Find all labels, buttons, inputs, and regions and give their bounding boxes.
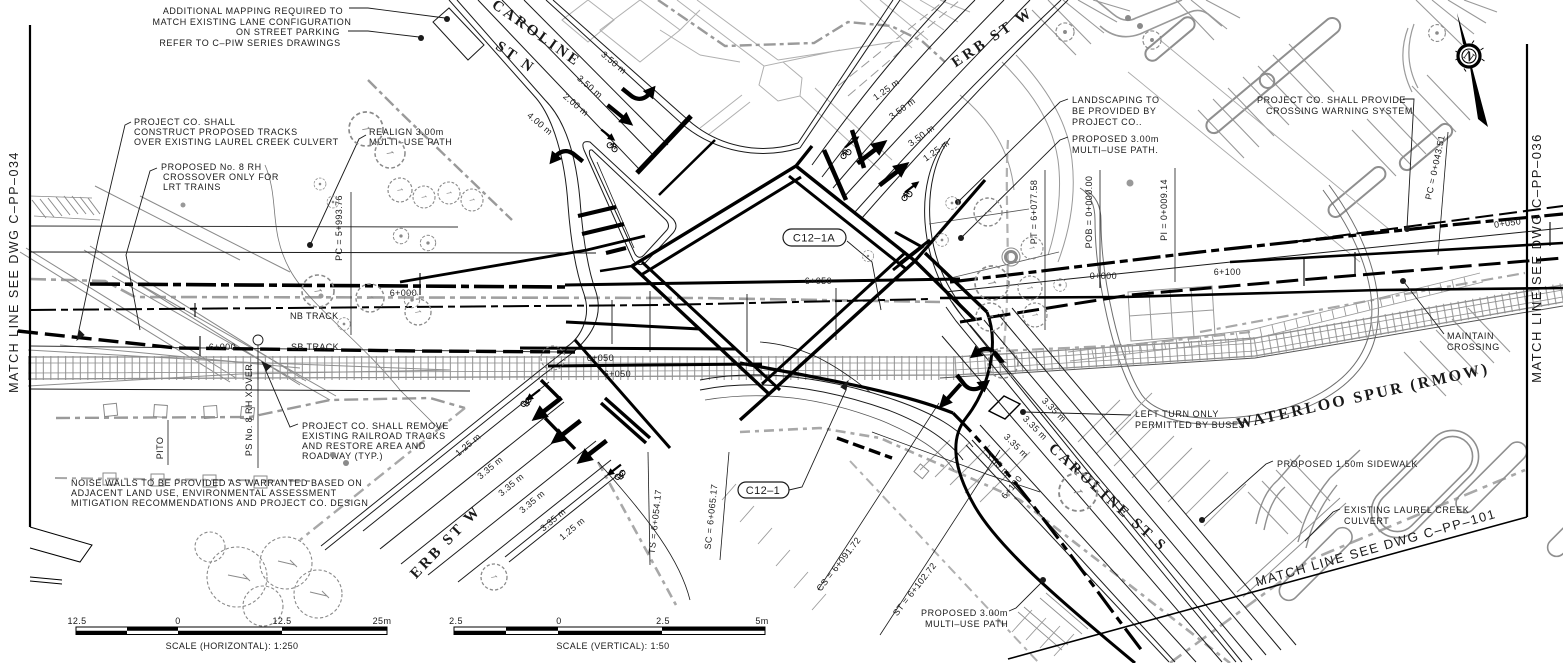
svg-text:6+000: 6+000 bbox=[390, 288, 417, 298]
svg-text:NOISE WALLS TO BE PROVIDED: NOISE WALLS TO BE PROVIDED AS WARRANTED … bbox=[71, 478, 362, 488]
svg-text:OVER EXISTING LAUREL CREEK: OVER EXISTING LAUREL CREEK CULVERT bbox=[134, 137, 339, 147]
svg-text:SCALE (HORIZONTAL): 1:250: SCALE (HORIZONTAL): 1:250 bbox=[166, 641, 299, 651]
svg-text:LANDSCAPING TO: LANDSCAPING TO bbox=[1072, 95, 1160, 105]
svg-text:NB TRACK: NB TRACK bbox=[290, 311, 339, 321]
svg-text:CULVERT: CULVERT bbox=[1344, 516, 1389, 526]
svg-text:25m: 25m bbox=[373, 616, 392, 626]
svg-text:PROPOSED 3.00m: PROPOSED 3.00m bbox=[921, 608, 1008, 618]
svg-text:CONSTRUCT PROPOSED TRACKS: CONSTRUCT PROPOSED TRACKS bbox=[134, 127, 298, 137]
svg-text:C12–1A: C12–1A bbox=[793, 233, 835, 245]
svg-text:MITIGATION RECOMMENDATIONS A: MITIGATION RECOMMENDATIONS AND PROJECT C… bbox=[71, 498, 368, 508]
svg-text:PROJECT CO. SHALL PROVIDE: PROJECT CO. SHALL PROVIDE bbox=[1257, 95, 1406, 105]
svg-text:2.5: 2.5 bbox=[449, 616, 463, 626]
svg-text:LRT TRAINS: LRT TRAINS bbox=[163, 182, 221, 192]
svg-text:0+000: 0+000 bbox=[1090, 271, 1117, 281]
svg-text:PC = 5+993.76: PC = 5+993.76 bbox=[334, 195, 344, 261]
svg-text:BE PROVIDED BY: BE PROVIDED BY bbox=[1072, 106, 1156, 116]
svg-text:0: 0 bbox=[556, 616, 561, 626]
svg-text:PROJECT CO. SHALL REMOVE: PROJECT CO. SHALL REMOVE bbox=[302, 421, 449, 431]
svg-text:PT = 6+077.58: PT = 6+077.58 bbox=[1029, 180, 1039, 245]
svg-text:ADJACENT LAND USE, ENVIRONM: ADJACENT LAND USE, ENVIRONMENTAL ASSESSM… bbox=[71, 488, 337, 498]
svg-text:C12–1: C12–1 bbox=[746, 485, 780, 497]
svg-text:6+050: 6+050 bbox=[604, 369, 631, 379]
svg-text:CROSSING WARNING SYSTEM: CROSSING WARNING SYSTEM bbox=[1266, 106, 1413, 116]
svg-text:6+050: 6+050 bbox=[587, 353, 614, 363]
svg-text:EXISTING RAILROAD TRACKS: EXISTING RAILROAD TRACKS bbox=[302, 431, 446, 441]
svg-text:PROPOSED 3.00m: PROPOSED 3.00m bbox=[1072, 134, 1159, 144]
svg-text:0: 0 bbox=[175, 616, 180, 626]
svg-text:MULTI–USE PATH: MULTI–USE PATH bbox=[369, 137, 452, 147]
svg-text:MATCH EXISTING LANE CONFIGU: MATCH EXISTING LANE CONFIGURATION bbox=[153, 17, 352, 27]
svg-text:REFER TO C–PIW SERIES DRAW: REFER TO C–PIW SERIES DRAWINGS bbox=[159, 38, 340, 48]
svg-text:2.5: 2.5 bbox=[656, 616, 670, 626]
svg-text:PS No. 8 RH XOVER: PS No. 8 RH XOVER bbox=[244, 364, 254, 456]
svg-text:CROSSOVER ONLY FOR: CROSSOVER ONLY FOR bbox=[163, 172, 279, 182]
svg-text:SCALE (VERTICAL): 1:50: SCALE (VERTICAL): 1:50 bbox=[556, 641, 669, 651]
svg-text:PERMITTED BY BUSES: PERMITTED BY BUSES bbox=[1135, 420, 1245, 430]
svg-text:ROADWAY (TYP.): ROADWAY (TYP.) bbox=[302, 451, 383, 461]
svg-text:MAINTAIN: MAINTAIN bbox=[1447, 331, 1494, 341]
svg-text:PITO: PITO bbox=[155, 437, 165, 459]
svg-text:ON STREET PARKING: ON STREET PARKING bbox=[236, 27, 340, 37]
svg-text:6+100: 6+100 bbox=[1214, 267, 1241, 277]
svg-text:POB = 0+000.00: POB = 0+000.00 bbox=[1084, 176, 1094, 249]
svg-text:PROJECT CO..: PROJECT CO.. bbox=[1072, 117, 1142, 127]
svg-text:EXISTING LAUREL CREEK: EXISTING LAUREL CREEK bbox=[1344, 505, 1469, 515]
svg-text:6+050: 6+050 bbox=[805, 276, 832, 286]
svg-text:12.5: 12.5 bbox=[67, 616, 86, 626]
svg-text:MATCH LINE SEE DWG C–PP–03: MATCH LINE SEE DWG C–PP–036 bbox=[1529, 133, 1544, 383]
svg-text:12.5: 12.5 bbox=[272, 616, 291, 626]
svg-text:CROSSING: CROSSING bbox=[1447, 342, 1500, 352]
svg-text:LEFT TURN ONLY: LEFT TURN ONLY bbox=[1135, 409, 1219, 419]
svg-text:6+000: 6+000 bbox=[209, 342, 236, 352]
svg-text:PROPOSED 1.50m SIDEWALK: PROPOSED 1.50m SIDEWALK bbox=[1277, 459, 1418, 469]
svg-text:MATCH LINE SEE DWG C–PP–03: MATCH LINE SEE DWG C–PP–034 bbox=[7, 151, 21, 393]
svg-text:AND RESTORE AREA AND: AND RESTORE AREA AND bbox=[302, 441, 426, 451]
svg-text:5m: 5m bbox=[755, 616, 768, 626]
svg-text:PROJECT CO. SHALL: PROJECT CO. SHALL bbox=[134, 117, 236, 127]
svg-text:ADDITIONAL MAPPING REQUIRED: ADDITIONAL MAPPING REQUIRED TO bbox=[163, 6, 343, 16]
svg-text:SB TRACK: SB TRACK bbox=[291, 342, 339, 352]
svg-text:PI = 0+009.14: PI = 0+009.14 bbox=[1159, 179, 1169, 241]
svg-text:MULTI–USE PATH: MULTI–USE PATH bbox=[925, 619, 1008, 629]
svg-text:PROPOSED No. 8 RH: PROPOSED No. 8 RH bbox=[161, 162, 262, 172]
svg-text:MULTI–USE PATH.: MULTI–USE PATH. bbox=[1072, 145, 1159, 155]
svg-text:REALIGN 3.00m: REALIGN 3.00m bbox=[369, 127, 444, 137]
